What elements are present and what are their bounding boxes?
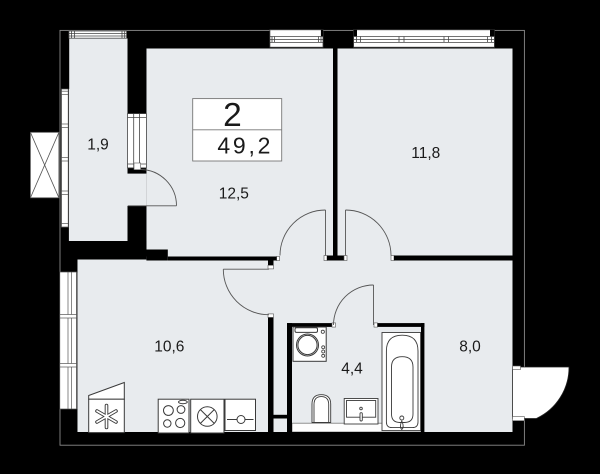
svg-text:4,4: 4,4	[341, 360, 363, 377]
svg-text:8,0: 8,0	[459, 338, 481, 355]
svg-text:49,2: 49,2	[217, 132, 273, 158]
svg-text:1,9: 1,9	[87, 137, 109, 154]
svg-text:2: 2	[223, 97, 242, 134]
svg-text:10,6: 10,6	[154, 338, 184, 355]
svg-text:12,5: 12,5	[219, 185, 249, 202]
svg-text:11,8: 11,8	[411, 145, 440, 162]
